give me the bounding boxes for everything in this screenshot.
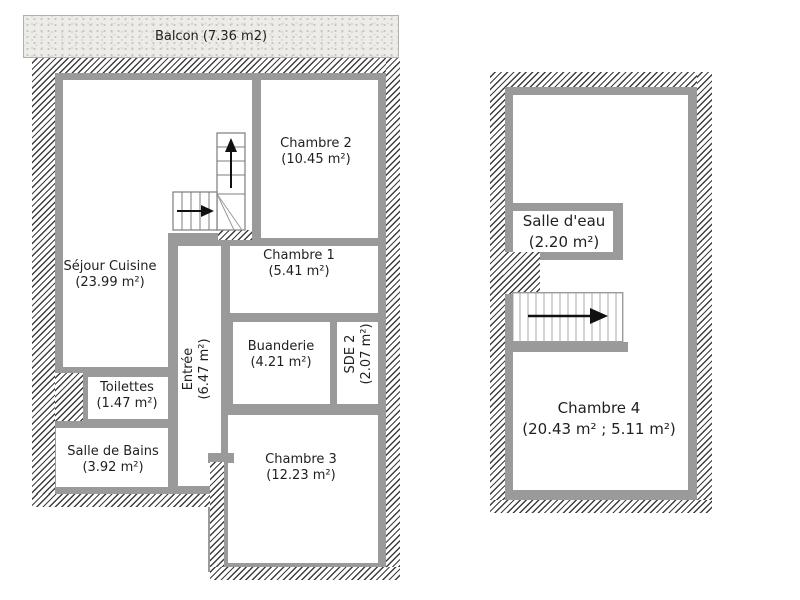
- label-chambre-3: Chambre 3 (12.23 m²): [265, 452, 337, 484]
- balcony-label: Balcon (7.36 m2): [155, 29, 267, 45]
- right-exterior-wall-top: [490, 72, 712, 87]
- label-buanderie: Buanderie (4.21 m²): [248, 339, 315, 371]
- salle-deau-wall-top: [505, 203, 623, 211]
- exterior-wall-top: [32, 58, 399, 73]
- label-sejour-cuisine: Séjour Cuisine (23.99 m²): [63, 259, 156, 291]
- label-sde-2: SDE 2 (2.07 m²): [343, 323, 375, 384]
- label-salle-de-bains: Salle de Bains (3.92 m²): [67, 444, 158, 476]
- label-chambre-1: Chambre 1 (5.41 m²): [263, 248, 335, 280]
- exterior-wall-right: [386, 58, 400, 580]
- left-staircase: [168, 128, 260, 240]
- salle-deau-wall-bottom: [536, 252, 623, 260]
- right-exterior-wall-right: [697, 72, 712, 513]
- exterior-wall-extension-left: [210, 462, 224, 580]
- label-chambre-4: Chambre 4 (20.43 m² ; 5.11 m²): [522, 398, 675, 440]
- duct-hatch-block: [55, 373, 83, 421]
- exterior-wall-left: [32, 58, 55, 507]
- right-exterior-wall-bottom: [490, 500, 712, 513]
- stair-wall-bottom: [505, 342, 628, 352]
- label-toilettes: Toilettes (1.47 m²): [96, 380, 157, 412]
- floor-plan-canvas: Balcon (7.36 m2): [0, 0, 800, 600]
- label-chambre-2: Chambre 2 (10.45 m²): [280, 136, 352, 168]
- room-chambre-3: [228, 415, 378, 563]
- room-sejour-cuisine: [63, 80, 168, 367]
- exterior-wall-extension-bottom: [210, 567, 400, 580]
- label-salle-deau: Salle d'eau (2.20 m²): [523, 211, 606, 253]
- balcony-area: Balcon (7.36 m2): [23, 15, 399, 58]
- label-entree: Entrée (6.47 m²): [181, 338, 213, 399]
- right-hatch-block: [503, 252, 540, 294]
- right-staircase: [512, 292, 624, 343]
- exterior-wall-bottom-left: [32, 494, 212, 507]
